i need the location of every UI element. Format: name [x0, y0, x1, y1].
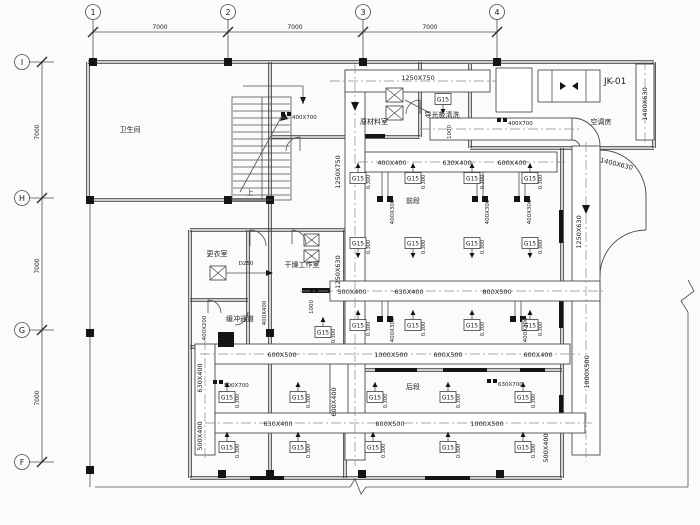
diffuser: G150.300 — [515, 432, 537, 458]
diffuser-flow: 0.300 — [306, 394, 312, 408]
diffuser-flow: 0.300 — [531, 394, 537, 408]
diffuser-flow: 0.300 — [456, 394, 462, 408]
flow-arrow-icon — [470, 310, 475, 315]
grille-damper — [377, 196, 383, 202]
diffuser: G150.300 — [440, 382, 462, 408]
duct-size-rowC-4: 600X400 — [523, 351, 552, 359]
wall-solid-segment — [425, 476, 470, 480]
riser-size-4: 400X300 — [390, 317, 396, 342]
flow-arrow-icon — [528, 253, 533, 258]
diffuser-tag: G15 — [466, 176, 478, 183]
diffuser-flow: 0.300 — [366, 240, 372, 254]
diffusers: G150.300G150.300G150.300G150.300G150.300… — [219, 94, 544, 459]
diffuser-tag: G15 — [352, 176, 364, 183]
duct-size-right-riser: 500X400 — [542, 433, 550, 462]
duct-size-left-drop-upper: 630X400 — [196, 363, 204, 392]
duct-size-rowD-2: 1000X500 — [470, 420, 503, 428]
wall-solid-segment — [375, 368, 417, 372]
duct-size-right-upper: 1250X630 — [575, 215, 583, 248]
duct-size-rowB-2: 630X400 — [394, 288, 423, 296]
room-rear: 后段 — [406, 382, 420, 391]
diffuser-flow: 0.300 — [235, 444, 241, 458]
diffuser-flow: 0.300 — [421, 322, 427, 336]
flow-arrow-icon — [296, 382, 301, 387]
dim-span-top-2: 7000 — [287, 24, 302, 31]
room-washroom: 卫生间 — [120, 125, 141, 134]
fd-stair-label: 400X700 — [292, 115, 317, 121]
room-raw-material: 原材料室 — [360, 117, 388, 126]
buffer-duct-v1: 400X200 — [202, 315, 208, 340]
diffuser-tag: G15 — [442, 395, 454, 402]
diffuser-tag: G15 — [352, 241, 364, 248]
diffuser-flow: 0.300 — [531, 444, 537, 458]
diffuser-flow: 0.300 — [538, 175, 544, 189]
duct-size-rowD-left: 630X400 — [263, 420, 292, 428]
wall-solid-segment — [302, 288, 332, 293]
duct-size-rowC-1: 600X500 — [267, 351, 296, 359]
diffuser: G150.300 — [365, 432, 387, 458]
column — [86, 466, 94, 474]
duct-size-rowC-2: 1000X500 — [374, 351, 407, 359]
duct-size-rowD-1: 800X500 — [375, 420, 404, 428]
duct-size-rowA-1: 400X400 — [377, 159, 406, 167]
wall-solid-segment — [443, 368, 487, 372]
diffuser-flow: 0.300 — [366, 322, 372, 336]
exhaust-fan — [210, 266, 273, 280]
grille-damper — [377, 316, 383, 322]
diffuser: G150.300 — [290, 382, 312, 408]
wall-solid-segment — [250, 476, 284, 480]
riser-size-5: 400X300 — [523, 317, 529, 342]
duct-size-rowA-3: 600X400 — [497, 159, 526, 167]
flow-arrow-icon — [528, 310, 533, 315]
column — [358, 470, 366, 478]
room-ac: 空调房 — [591, 117, 612, 126]
column — [86, 196, 94, 204]
diffuser-tag: G15 — [221, 395, 233, 402]
diffuser-tag: G15 — [369, 395, 381, 402]
diffuser-tag: G15 — [407, 323, 419, 330]
grille-damper — [514, 196, 520, 202]
column — [224, 58, 232, 66]
duct-size-main-top: 1250X750 — [401, 74, 434, 82]
flow-arrow-icon — [373, 382, 378, 387]
diffuser-flow: 0.300 — [480, 240, 486, 254]
diffuser-tag: G15 — [442, 445, 454, 452]
column — [496, 470, 504, 478]
diffuser-tag: G15 — [367, 445, 379, 452]
diffuser: G150.300 — [464, 238, 486, 259]
diffuser: G150.300 — [522, 238, 544, 259]
column — [266, 329, 274, 337]
room-changing: 更衣室 — [207, 249, 228, 258]
grid-bubble-H: H — [19, 194, 25, 203]
column — [493, 58, 501, 66]
dim-span-left-1: 7000 — [34, 124, 41, 139]
diffuser-tag: G15 — [221, 445, 233, 452]
duct-size-rowB-1: 500X400 — [337, 288, 366, 296]
diffuser-flow: 0.300 — [383, 394, 389, 408]
diffuser: G150.300 — [440, 432, 462, 458]
diffuser-tag: G15 — [352, 323, 364, 330]
diffuser-flow: 0.300 — [331, 329, 337, 343]
flow-arrow-icon — [470, 253, 475, 258]
dim-span-left-3: 7000 — [34, 390, 41, 405]
buffer-duct-v2: 400X400 — [262, 300, 268, 325]
diffuser-flow: 0.300 — [381, 444, 387, 458]
dimension-ticks — [37, 27, 502, 467]
hvac-floor-plan: 1 2 3 4 I H G F 7000 7000 7000 7000 7000… — [0, 0, 700, 525]
diffuser: G150.300 — [219, 432, 241, 458]
ahu-tag: JK-01 — [603, 77, 626, 87]
column — [86, 329, 94, 337]
room-buffer: 缓冲通道 — [226, 314, 254, 323]
fd-rear-right-label: 630X700 — [498, 382, 523, 388]
room-drying: 干燥工作室 — [285, 260, 320, 269]
duct-size-rowC-3: 600X500 — [433, 351, 462, 359]
wall-solid-segment — [559, 300, 563, 328]
flow-arrow-icon — [446, 382, 451, 387]
riser-size-1: 400X300 — [390, 199, 396, 224]
exhaust-size: D250 — [239, 261, 254, 267]
diffuser-tag: G15 — [437, 97, 449, 104]
duct-size-right-lower: 1000X500 — [583, 355, 591, 388]
dim-span-top-1: 7000 — [152, 24, 167, 31]
flow-arrow-icon — [411, 253, 416, 258]
fd-ahu-label: 400X700 — [508, 121, 533, 127]
duct-network — [195, 60, 654, 466]
diffuser-tag: G15 — [466, 323, 478, 330]
grid-bubble-1: 1 — [90, 8, 95, 17]
diffuser-flow: 0.300 — [456, 444, 462, 458]
diffuser-flow: 0.300 — [480, 175, 486, 189]
stair-up-label: 上 — [247, 188, 254, 197]
grid-bubble-2: 2 — [225, 8, 230, 17]
ac-plenum — [496, 68, 532, 112]
wall-solid-segment — [559, 210, 563, 243]
diffuser: G150.300 — [464, 310, 486, 336]
diffuser-flow: 0.300 — [538, 240, 544, 254]
grille-damper — [510, 316, 516, 322]
diffuser-tag: G15 — [517, 395, 529, 402]
plan-canvas: 1 2 3 4 I H G F 7000 7000 7000 7000 7000… — [0, 0, 700, 525]
duct-size-rowA-2: 630X400 — [442, 159, 471, 167]
column — [218, 470, 226, 478]
duct-size-elbow: 1400X630 — [599, 156, 633, 172]
room-front: 前段 — [406, 196, 420, 205]
diffuser-flow: 0.300 — [235, 394, 241, 408]
grille-damper — [472, 196, 478, 202]
diffuser-flow: 0.300 — [421, 240, 427, 254]
riser-size-2: 400X300 — [485, 199, 491, 224]
diffuser-tag: G15 — [292, 445, 304, 452]
diffuser: G150.300 — [315, 317, 337, 343]
grid-bubble-3: 3 — [360, 8, 365, 17]
ahu-unit — [538, 70, 600, 102]
diffuser: G150.300 — [367, 382, 389, 408]
duct-size-left-lower: 1250X630 — [334, 255, 342, 288]
fd-rear-left-label: 500X700 — [224, 383, 249, 389]
diffuser-tag: G15 — [466, 241, 478, 248]
diffuser-tag: G15 — [407, 176, 419, 183]
duct-size-left-drop-lower: 500X400 — [196, 421, 204, 450]
diffuser-tag: G15 — [292, 395, 304, 402]
flow-arrow-icon — [321, 317, 326, 322]
diffuser-flow: 0.300 — [480, 322, 486, 336]
diffuser-tag: G15 — [317, 330, 329, 337]
label-cleaner: 导光板清洗 — [425, 110, 460, 119]
buffer-shaft — [218, 332, 234, 347]
buffer-drop-height: 1000 — [309, 300, 315, 314]
column — [89, 58, 97, 66]
diffuser-tag: G15 — [524, 241, 536, 248]
dim-span-left-2: 7000 — [34, 258, 41, 273]
grid-bubble-F: F — [20, 458, 25, 467]
column — [224, 196, 232, 204]
diffuser: G150.300 — [405, 238, 427, 259]
drop-height-a: 1000 — [447, 125, 453, 139]
diffuser-tag: G15 — [524, 176, 536, 183]
grid-bubble-I: I — [21, 58, 23, 67]
diffuser-flow: 0.300 — [538, 322, 544, 336]
wall-solid-segment — [520, 368, 545, 372]
duct-size-left-upper: 1250X750 — [334, 155, 342, 188]
riser-size-3: 400X300 — [527, 199, 533, 224]
grid-bubble-G: G — [19, 326, 25, 335]
duct-size-mid-drop: 600X400 — [330, 387, 338, 416]
grid-bubble-4: 4 — [494, 8, 499, 17]
diffuser-flow: 0.300 — [421, 175, 427, 189]
diffuser: G150.300 — [405, 310, 427, 336]
diffuser: G150.300 — [290, 432, 312, 458]
column — [359, 58, 367, 66]
diffuser-tag: G15 — [407, 241, 419, 248]
duct-size-intake: 1400X630 — [641, 87, 649, 120]
duct-size-rowB-3: 800X500 — [482, 288, 511, 296]
diffuser-flow: 0.300 — [306, 444, 312, 458]
dim-span-top-3: 7000 — [422, 24, 437, 31]
flow-arrow-icon — [411, 310, 416, 315]
diffuser-tag: G15 — [517, 445, 529, 452]
diffuser-flow: 0.300 — [366, 175, 372, 189]
